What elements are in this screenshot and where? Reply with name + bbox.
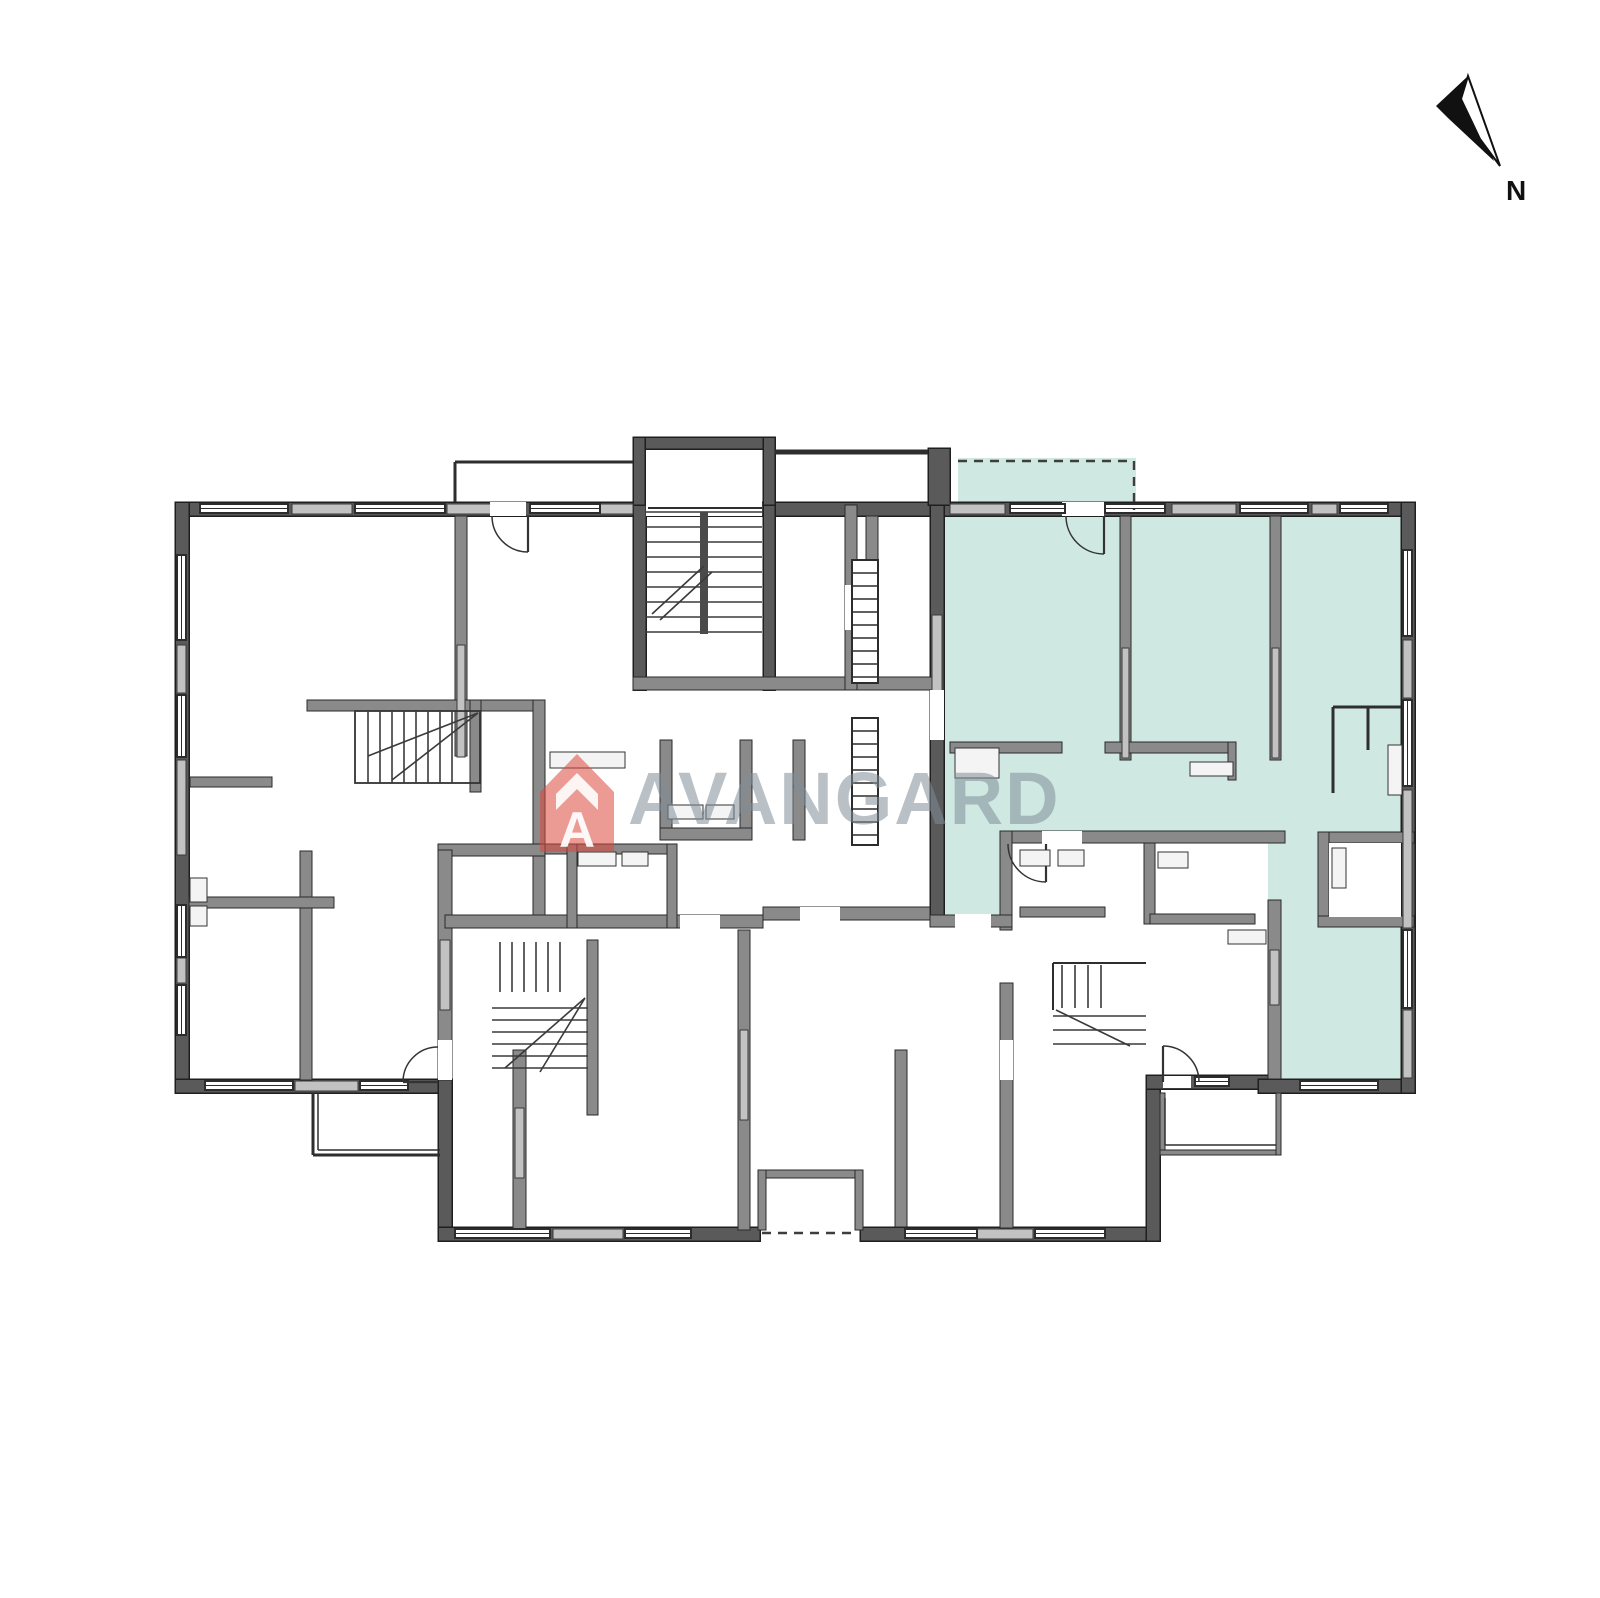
wall-pier	[1403, 790, 1412, 928]
brand-icon-letter: A	[559, 802, 595, 858]
wall-exterior	[763, 505, 775, 690]
fixture	[1388, 745, 1402, 795]
north-arrow: N	[1436, 76, 1526, 206]
wall-exterior	[928, 448, 950, 505]
wall-exterior	[1146, 1075, 1160, 1241]
wall-interior	[1150, 914, 1255, 924]
fixture	[1020, 850, 1050, 866]
wall-interior	[1000, 983, 1013, 1228]
wall-pier	[177, 760, 186, 855]
floor-plan-page: A AVANGARD N	[0, 0, 1600, 1598]
wall-opening	[955, 914, 991, 928]
wall-pier	[553, 1229, 623, 1239]
wall-exterior	[633, 505, 646, 690]
wall-exterior	[763, 437, 775, 515]
wall-pier	[292, 504, 352, 514]
wall-pier	[977, 1229, 1033, 1239]
wall-interior	[1318, 832, 1414, 843]
fixture	[622, 852, 648, 866]
wall-pier	[177, 958, 186, 983]
wall-opening	[1062, 502, 1104, 516]
wall-opening	[1163, 1076, 1191, 1088]
wall-pier	[1172, 504, 1236, 514]
floor-plan: A AVANGARD N	[0, 0, 1600, 1598]
wall-interior	[587, 940, 598, 1115]
wall-interior	[1318, 832, 1329, 927]
wall-interior	[855, 1170, 863, 1230]
wall-interior	[1020, 907, 1105, 917]
wall-interior	[758, 1170, 766, 1230]
fixture	[1228, 930, 1266, 944]
wall-interior	[758, 1170, 863, 1178]
wall-pier	[440, 940, 450, 1010]
fixture	[1158, 852, 1188, 868]
highlighted-area	[958, 458, 1136, 505]
wall-interior	[1144, 843, 1155, 924]
wall-opening	[1000, 1040, 1013, 1080]
wall-exterior	[438, 1079, 452, 1241]
north-label: N	[1506, 175, 1526, 206]
wall-opening	[438, 1040, 452, 1080]
stair-winder-line	[540, 998, 585, 1072]
wall-pier	[1312, 504, 1337, 514]
wall-pier	[295, 1081, 358, 1091]
door-swing-arc	[492, 516, 528, 552]
fixture	[190, 906, 207, 926]
wall-interior	[300, 851, 312, 1080]
wall-pier	[177, 645, 186, 693]
wall-opening	[490, 502, 526, 516]
wall-pier	[1122, 648, 1129, 758]
stair-winder-line	[652, 566, 704, 614]
wall-pier	[1403, 1010, 1412, 1078]
wall-pier	[1272, 648, 1279, 758]
wall-interior	[895, 1050, 907, 1227]
wall-interior	[1276, 1093, 1281, 1155]
wall-pier	[950, 504, 1005, 514]
fixture	[190, 878, 207, 902]
wall-interior	[1160, 1150, 1281, 1155]
wall-opening	[930, 690, 944, 740]
wall-pier	[515, 1108, 524, 1178]
wall-interior	[307, 700, 545, 711]
wall-pier	[1270, 950, 1279, 1005]
wall-interior	[633, 677, 933, 690]
wall-pier	[1403, 640, 1412, 698]
wall-opening	[800, 907, 840, 921]
wall-exterior	[633, 437, 645, 515]
wall-interior	[438, 844, 545, 856]
wall-pier	[600, 504, 633, 514]
wall-opening	[680, 915, 720, 929]
brand-wordmark: AVANGARD	[628, 757, 1061, 840]
wall-interior	[667, 844, 677, 928]
wall-interior	[189, 897, 334, 908]
wall-interior	[190, 777, 272, 787]
fixture	[1190, 762, 1233, 776]
wall-pier	[740, 1030, 748, 1120]
door-swing-arc	[403, 1047, 438, 1082]
wall-pier	[457, 645, 465, 757]
fixture	[1332, 848, 1346, 888]
stair-stringer	[700, 512, 708, 634]
wall-exterior	[633, 437, 775, 449]
wall-interior	[1318, 916, 1414, 927]
fixture	[1058, 850, 1084, 866]
wall-interior	[763, 907, 930, 920]
